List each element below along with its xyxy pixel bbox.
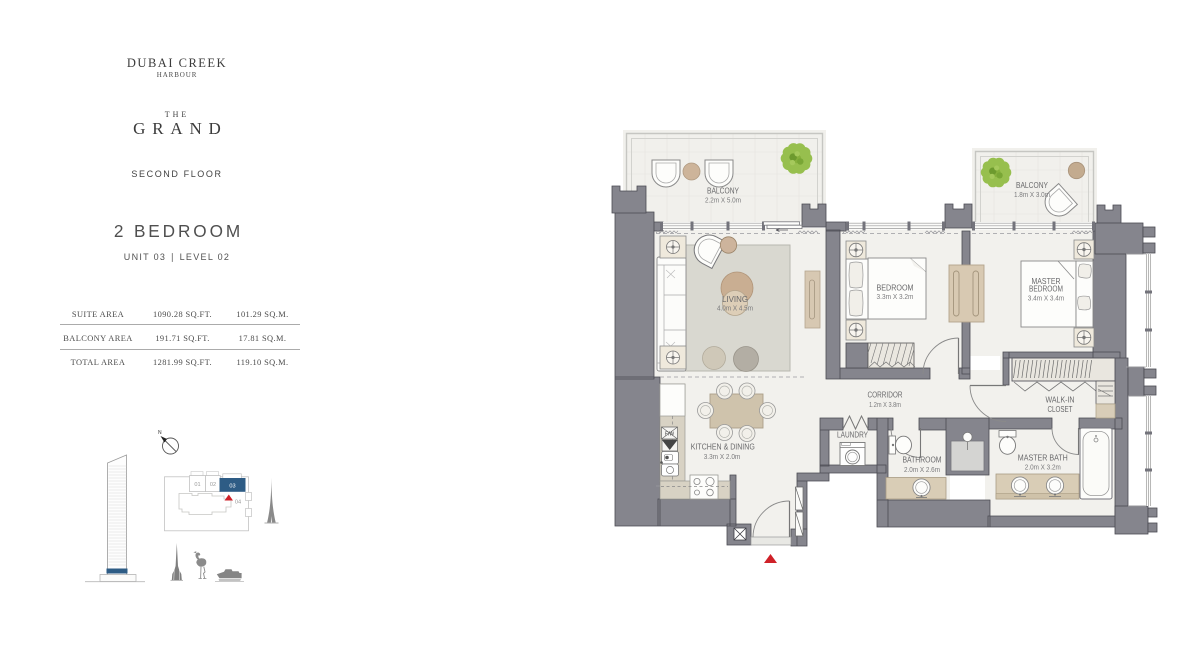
svg-text:LAUNDRY: LAUNDRY bbox=[837, 431, 869, 440]
svg-text:3.3m X 3.2m: 3.3m X 3.2m bbox=[877, 292, 914, 301]
svg-text:04: 04 bbox=[235, 500, 241, 506]
svg-text:3.3m X 2.0m: 3.3m X 2.0m bbox=[704, 452, 741, 461]
svg-text:2.2m X 5.0m: 2.2m X 5.0m bbox=[705, 196, 741, 205]
svg-text:2.0m X 3.2m: 2.0m X 3.2m bbox=[1025, 463, 1061, 472]
svg-text:BALCONY: BALCONY bbox=[1016, 181, 1049, 190]
svg-text:3.4m X 3.4m: 3.4m X 3.4m bbox=[1028, 294, 1065, 303]
svg-text:BEDROOM: BEDROOM bbox=[1029, 285, 1063, 294]
svg-text:01: 01 bbox=[194, 482, 200, 488]
svg-text:2.0m X 2.6m: 2.0m X 2.6m bbox=[904, 465, 940, 474]
svg-text:CORRIDOR: CORRIDOR bbox=[868, 391, 903, 400]
svg-text:N: N bbox=[158, 430, 162, 436]
svg-text:WALK-IN: WALK-IN bbox=[1046, 396, 1075, 405]
svg-text:F/W: F/W bbox=[665, 432, 674, 438]
svg-text:1.8m X 3.0m: 1.8m X 3.0m bbox=[1014, 190, 1050, 199]
svg-text:KITCHEN & DINING: KITCHEN & DINING bbox=[691, 443, 755, 452]
svg-text:4.0m X 4.5m: 4.0m X 4.5m bbox=[717, 304, 753, 313]
svg-text:02: 02 bbox=[210, 482, 216, 488]
svg-text:CLOSET: CLOSET bbox=[1048, 405, 1073, 414]
svg-text:BATHROOM: BATHROOM bbox=[903, 456, 942, 465]
svg-text:MASTER BATH: MASTER BATH bbox=[1018, 454, 1068, 463]
svg-text:03: 03 bbox=[229, 484, 235, 490]
svg-text:BALCONY: BALCONY bbox=[707, 187, 740, 196]
svg-text:1.2m X 3.8m: 1.2m X 3.8m bbox=[869, 400, 901, 409]
